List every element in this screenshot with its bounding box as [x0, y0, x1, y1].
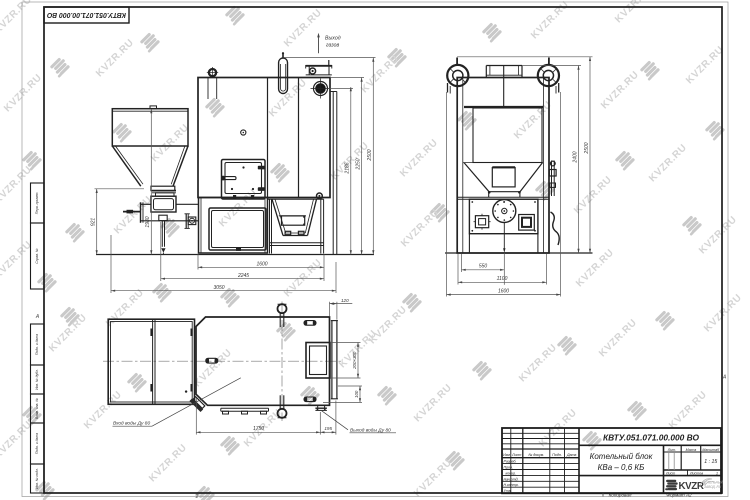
svg-text:195: 195	[324, 426, 332, 431]
svg-text:ЗАВОД .RU: ЗАВОД .RU	[704, 485, 722, 489]
svg-text:1: 1	[716, 472, 718, 476]
svg-text:Нач.отд.: Нач.отд.	[504, 477, 519, 481]
svg-text:конир.: конир.	[506, 471, 517, 475]
svg-text:Взам. инв. №: Взам. инв. №	[35, 398, 39, 419]
svg-text:Выход: Выход	[325, 35, 341, 41]
svg-text:КВТУ.051.071.00.000 ВО: КВТУ.051.071.00.000 ВО	[603, 432, 700, 442]
svg-text:921: 921	[90, 218, 96, 227]
svg-text:КВТУ.051.071.00.000 ВО: КВТУ.051.071.00.000 ВО	[46, 11, 126, 18]
svg-text:газов: газов	[326, 43, 340, 49]
svg-text:Лист: Лист	[665, 472, 675, 476]
svg-text:Подп. и дата: Подп. и дата	[35, 334, 39, 355]
svg-text:1100: 1100	[497, 276, 508, 282]
svg-text:2500: 2500	[367, 149, 373, 161]
svg-text:120: 120	[341, 298, 349, 303]
svg-text:А: А	[722, 375, 727, 381]
svg-text:100: 100	[354, 390, 359, 398]
svg-text:А: А	[35, 314, 40, 320]
svg-text:1600: 1600	[498, 288, 509, 294]
svg-text:1 : 15: 1 : 15	[704, 459, 717, 465]
svg-text:№ докум.: № докум.	[528, 453, 544, 457]
svg-text:Котельный блок: Котельный блок	[590, 452, 654, 461]
svg-text:1600: 1600	[256, 262, 267, 268]
svg-text:Подп. и дата: Подп. и дата	[35, 433, 39, 454]
svg-text:2186: 2186	[345, 162, 351, 174]
svg-text:Инв. № подл.: Инв. № подл.	[35, 468, 39, 489]
svg-text:Дата: Дата	[566, 453, 576, 457]
svg-text:Изм: Изм	[503, 453, 510, 457]
svg-text:Лит.: Лит.	[667, 448, 676, 452]
svg-text:2250: 2250	[355, 158, 361, 170]
svg-text:2400: 2400	[572, 151, 578, 163]
svg-text:2500: 2500	[584, 142, 590, 154]
svg-text:КВа – 0,6 КБ: КВа – 0,6 КБ	[598, 463, 645, 472]
svg-text:KVZR: KVZR	[679, 481, 704, 492]
svg-text:1980: 1980	[145, 216, 151, 227]
svg-text:Разраб.: Разраб.	[504, 460, 517, 464]
svg-text:Инв. № дубл.: Инв. № дубл.	[35, 369, 39, 390]
svg-text:Подп.: Подп.	[552, 453, 562, 457]
svg-text:Утв.: Утв.	[504, 489, 512, 493]
svg-text:Н.контр.: Н.контр.	[504, 483, 519, 487]
svg-text:Формат А2: Формат А2	[666, 493, 692, 498]
svg-text:Масштаб: Масштаб	[702, 448, 720, 452]
svg-text:2: 2	[195, 494, 199, 500]
svg-text:Перв. примен.: Перв. примен.	[35, 192, 39, 215]
svg-text:200×300: 200×300	[352, 351, 357, 370]
svg-text:Выход воды Ду 80: Выход воды Ду 80	[350, 427, 391, 433]
svg-text:3050: 3050	[213, 285, 224, 291]
svg-text:550: 550	[479, 264, 488, 270]
svg-text:Справ. №: Справ. №	[35, 248, 39, 264]
svg-text:Листов: Листов	[689, 472, 703, 476]
svg-text:Копировал: Копировал	[609, 493, 632, 498]
svg-text:1750: 1750	[253, 426, 264, 432]
svg-text:Вход воды Ду 80: Вход воды Ду 80	[113, 421, 150, 427]
svg-text:Пров.: Пров.	[504, 466, 513, 470]
svg-text:Лист: Лист	[511, 453, 521, 457]
svg-text:Масса: Масса	[686, 448, 697, 452]
svg-text:2245: 2245	[237, 273, 249, 279]
